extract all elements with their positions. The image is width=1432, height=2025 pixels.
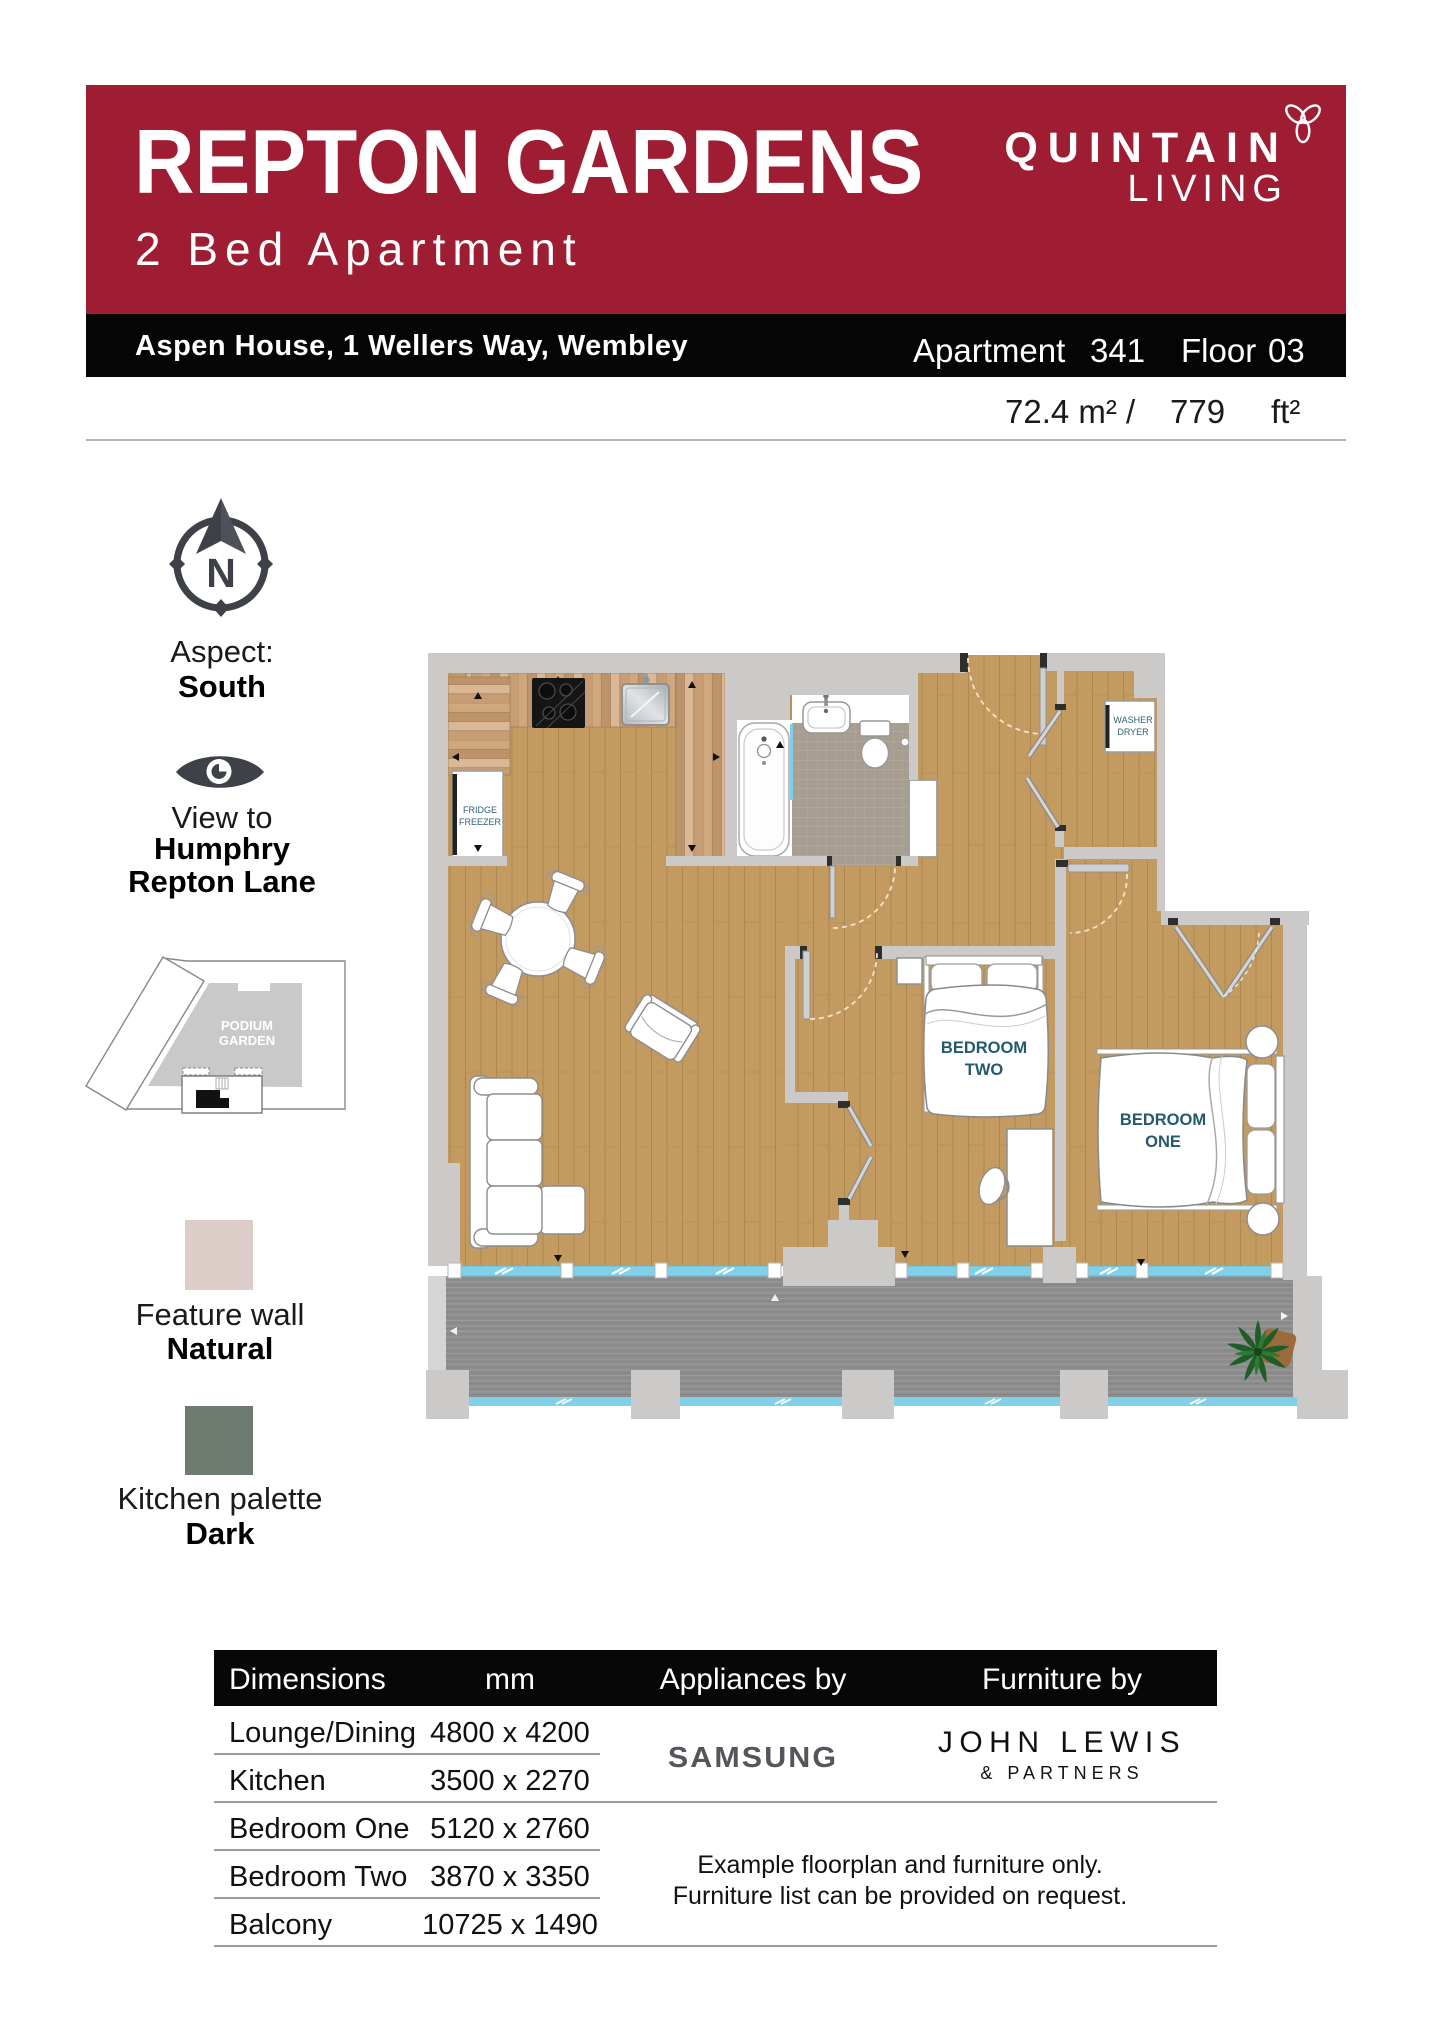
svg-text:ONE: ONE [1145,1133,1181,1151]
svg-text:BEDROOM: BEDROOM [1120,1111,1206,1129]
svg-text:WASHER: WASHER [1113,715,1153,725]
svg-text:N: N [206,550,236,596]
svg-text:BEDROOM: BEDROOM [941,1039,1027,1057]
svg-text:GARDEN: GARDEN [219,1033,275,1048]
svg-text:FRIDGE: FRIDGE [463,805,497,815]
svg-text:FREEZER: FREEZER [459,817,502,827]
svg-text:TWO: TWO [965,1061,1004,1079]
svg-text:DRYER: DRYER [1117,727,1149,737]
svg-text:PODIUM: PODIUM [221,1018,273,1033]
